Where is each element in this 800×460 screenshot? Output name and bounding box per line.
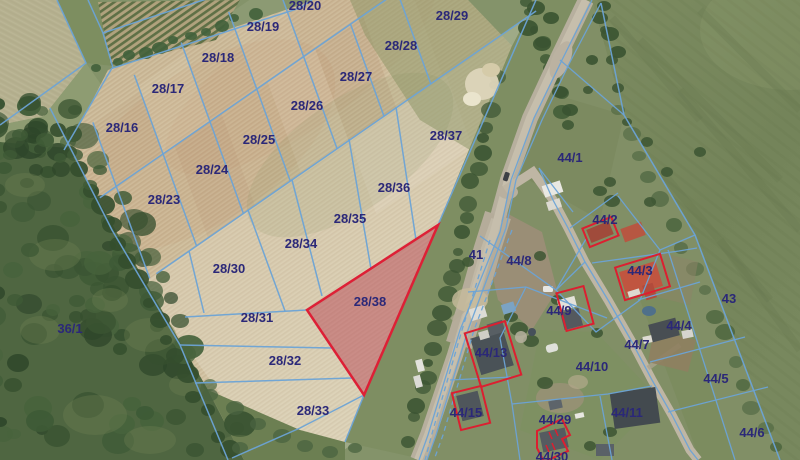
svg-text:44/9: 44/9: [546, 303, 571, 318]
svg-text:28/30: 28/30: [213, 261, 246, 276]
svg-text:28/17: 28/17: [152, 81, 185, 96]
svg-text:28/16: 28/16: [106, 120, 139, 135]
svg-text:44/10: 44/10: [576, 359, 609, 374]
svg-text:44/1: 44/1: [557, 150, 582, 165]
svg-text:28/35: 28/35: [334, 211, 367, 226]
svg-text:28/31: 28/31: [241, 310, 274, 325]
svg-text:28/25: 28/25: [243, 132, 276, 147]
svg-text:41: 41: [469, 247, 483, 262]
svg-text:44/8: 44/8: [506, 253, 531, 268]
svg-text:28/34: 28/34: [285, 236, 318, 251]
svg-text:28/27: 28/27: [340, 69, 373, 84]
svg-text:44/5: 44/5: [703, 371, 728, 386]
svg-text:28/18: 28/18: [202, 50, 235, 65]
svg-text:28/38: 28/38: [354, 294, 387, 309]
svg-text:28/24: 28/24: [196, 162, 229, 177]
svg-text:44/3: 44/3: [627, 263, 652, 278]
svg-text:44/13: 44/13: [475, 345, 508, 360]
svg-text:44/2: 44/2: [592, 212, 617, 227]
svg-text:28/23: 28/23: [148, 192, 181, 207]
svg-text:44/6: 44/6: [739, 425, 764, 440]
svg-text:43: 43: [722, 291, 736, 306]
svg-text:28/33: 28/33: [297, 403, 330, 418]
svg-text:28/36: 28/36: [378, 180, 411, 195]
svg-text:28/32: 28/32: [269, 353, 302, 368]
svg-text:44/4: 44/4: [666, 318, 692, 333]
svg-text:28/29: 28/29: [436, 8, 469, 23]
svg-text:28/37: 28/37: [430, 128, 463, 143]
svg-text:44/11: 44/11: [611, 405, 643, 420]
svg-text:28/20: 28/20: [289, 0, 322, 13]
svg-text:36/1: 36/1: [57, 321, 82, 336]
svg-text:44/29: 44/29: [539, 412, 572, 427]
svg-text:28/28: 28/28: [385, 38, 418, 53]
svg-text:44/30: 44/30: [536, 449, 569, 460]
svg-text:44/7: 44/7: [624, 337, 649, 352]
svg-text:28/19: 28/19: [247, 19, 280, 34]
svg-text:28/26: 28/26: [291, 98, 324, 113]
svg-text:44/15: 44/15: [450, 405, 483, 420]
